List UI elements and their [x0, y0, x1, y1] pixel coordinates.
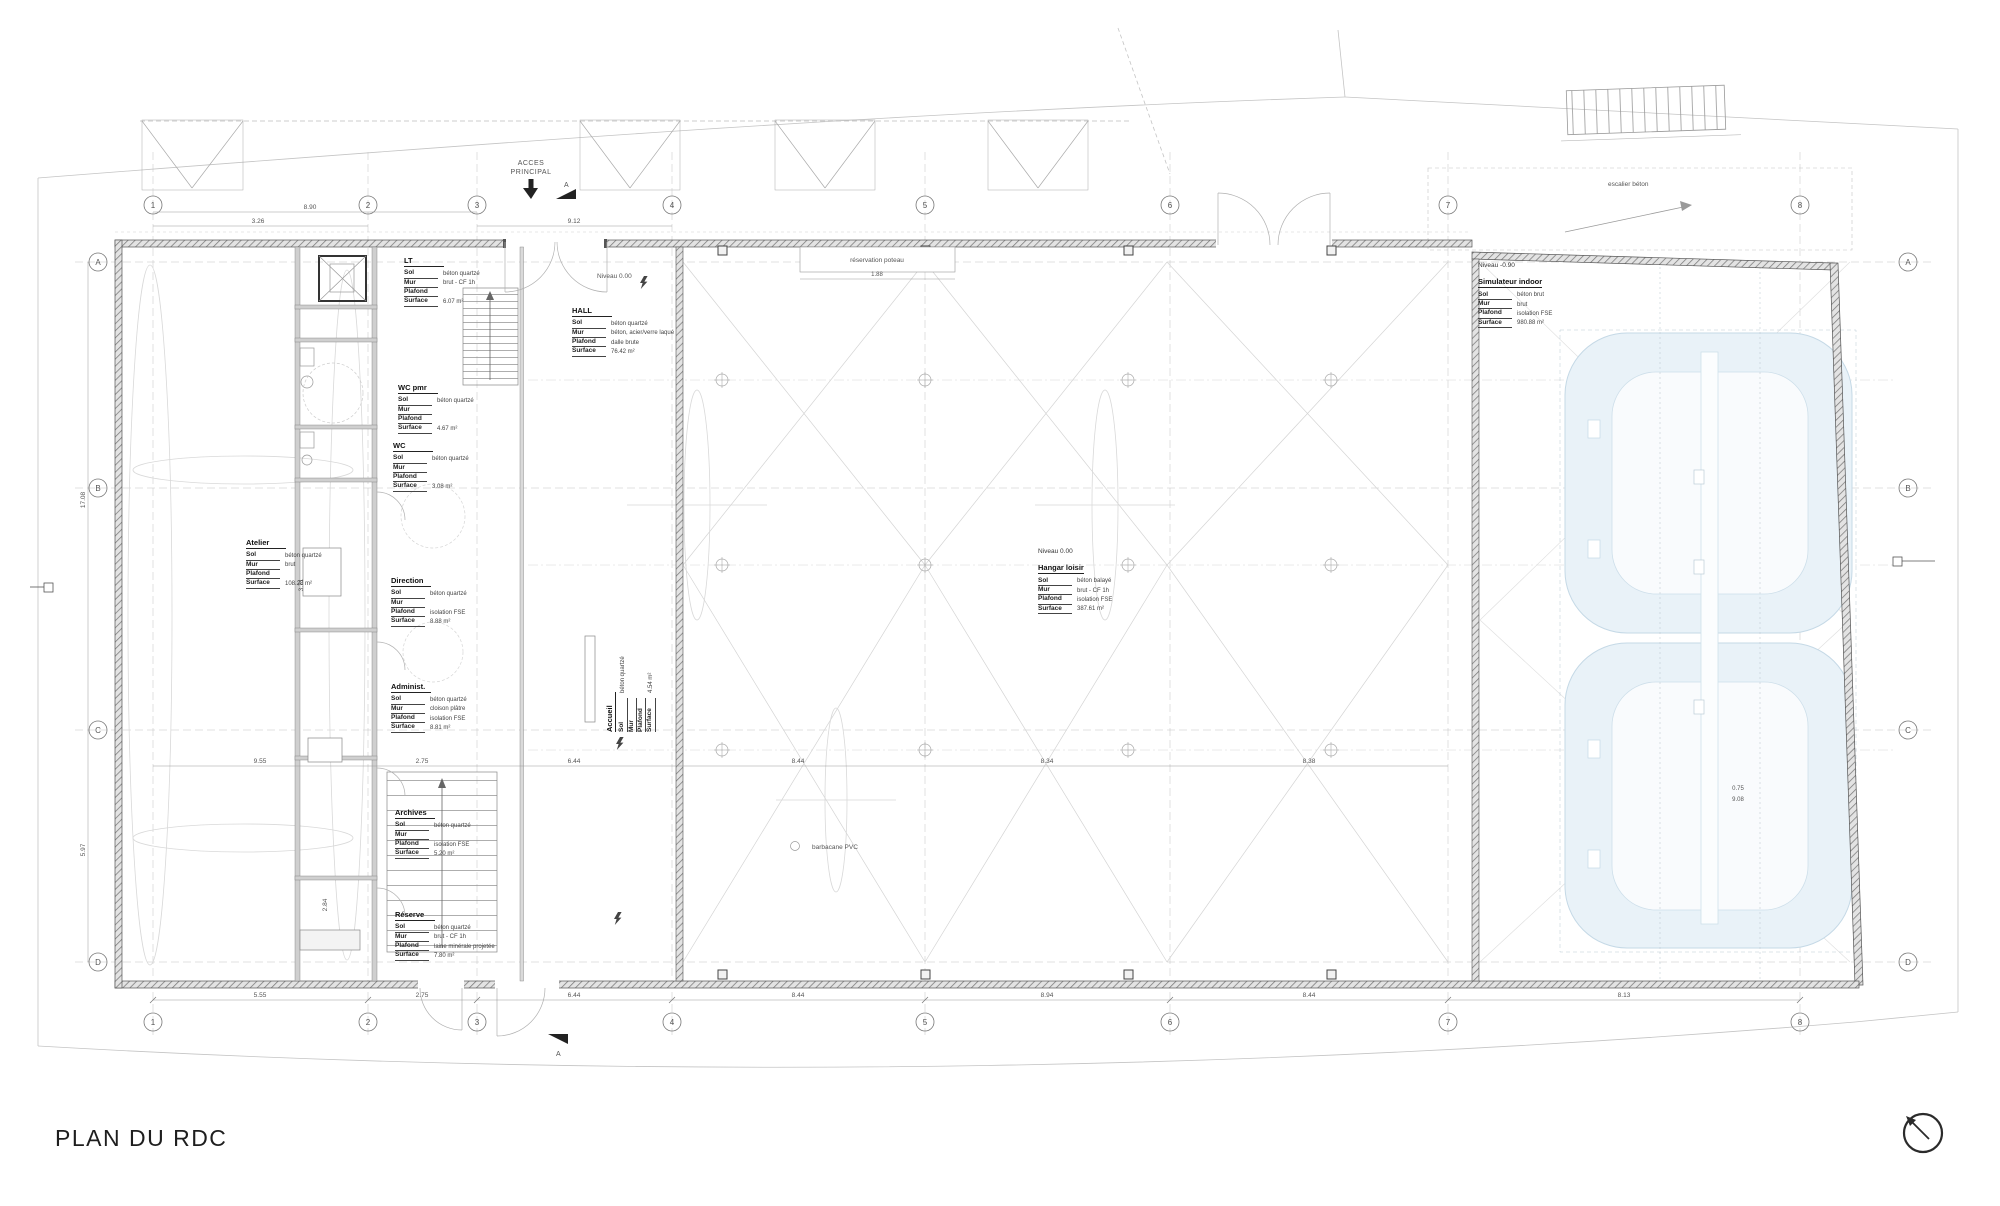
spec-value: brut - CF 1h [1072, 588, 1109, 596]
spec-value: 76.42 m² [606, 349, 635, 357]
lightning-icon [616, 737, 624, 750]
north-indicator [1904, 1114, 1942, 1152]
spec-label: Mur [391, 705, 425, 714]
spec-label: Plafond [391, 608, 425, 617]
svg-text:6.44: 6.44 [568, 758, 581, 765]
spec-value: isolation FSE [1512, 311, 1552, 319]
room-spec-wc: WC Solbéton quartzé Mur Plafond Surface3… [393, 434, 515, 492]
svg-text:0.75: 0.75 [1732, 786, 1744, 792]
canopy-trusses [115, 120, 1470, 232]
svg-text:8.38: 8.38 [1303, 758, 1316, 765]
spec-value: isolation FSE [425, 716, 465, 724]
spec-label: Sol [1478, 291, 1512, 300]
spec-label: Plafond [404, 288, 438, 297]
spec-value: 6.07 m² [438, 299, 463, 307]
spec-label: Mur [1478, 300, 1512, 309]
floor-plan-canvas: escalier béton [0, 0, 2000, 1206]
plan-drawing: escalier béton [0, 0, 2000, 1206]
spec-label: Sol [398, 396, 432, 405]
spec-label: Surface [404, 297, 438, 306]
svg-text:8.44: 8.44 [792, 992, 805, 999]
spec-label: Sol [391, 695, 425, 704]
svg-text:3.26: 3.26 [252, 218, 265, 225]
svg-text:7: 7 [1446, 1018, 1451, 1027]
svg-text:réservation poteau: réservation poteau [850, 257, 904, 264]
lightning-icon [614, 912, 622, 925]
room-spec-simulateur: Niveau -0.90 Simulateur indoor Solbéton … [1478, 262, 1600, 328]
spec-value: dalle brute [606, 340, 639, 348]
svg-text:C: C [1905, 726, 1911, 735]
svg-text:3: 3 [475, 201, 480, 210]
spec-label: Mur [1038, 586, 1072, 595]
svg-text:8: 8 [1798, 1018, 1803, 1027]
main-access-annotation: ACCES PRINCIPAL [511, 160, 552, 199]
svg-text:A: A [564, 182, 569, 189]
svg-text:9.08: 9.08 [1732, 797, 1744, 803]
room-name: Archives [395, 808, 435, 819]
spec-value: béton quartzé [280, 553, 322, 561]
svg-text:ACCES: ACCES [518, 160, 545, 167]
spec-value: béton quartzé [425, 591, 467, 599]
spec-label: Surface [391, 617, 425, 626]
section-marker-bottom: A [548, 1034, 568, 1058]
spec-label: Surface [1038, 605, 1072, 614]
spec-value: 3.08 m² [427, 484, 452, 492]
spec-value: béton quartzé [620, 656, 628, 698]
svg-text:1.88: 1.88 [871, 272, 883, 278]
svg-text:2: 2 [366, 201, 371, 210]
lightning-icon [640, 276, 648, 289]
section-marker-left [30, 583, 53, 592]
spec-label: Sol [395, 923, 429, 932]
drawing-title: PLAN DU RDC [55, 1125, 227, 1152]
svg-text:8.13: 8.13 [1618, 992, 1631, 999]
svg-text:D: D [95, 958, 101, 967]
spec-value: 4.67 m² [432, 426, 457, 434]
spec-value: isolation FSE [1072, 597, 1112, 605]
svg-text:6.44: 6.44 [568, 992, 581, 999]
simulator-pool [1560, 262, 1856, 980]
spec-value: 980.88 m² [1512, 320, 1544, 328]
room-name: Atelier [246, 538, 286, 549]
svg-text:8: 8 [1798, 201, 1803, 210]
room-spec-wc-pmr: WC pmr Solbéton quartzé Mur Plafond Surf… [398, 376, 520, 434]
svg-text:D: D [1905, 958, 1911, 967]
svg-text:3: 3 [475, 1018, 480, 1027]
room-spec-lt: LT Solbéton quartzé Murbrut - CF 1h Plaf… [404, 249, 526, 307]
spec-label: Sol [246, 551, 280, 560]
spec-value: béton quartzé [606, 321, 648, 329]
spec-value: béton quartzé [438, 271, 480, 279]
spec-label: Sol [395, 821, 429, 830]
svg-text:1: 1 [151, 201, 156, 210]
room-spec-administ: Administ. Solbéton quartzé Murcloison pl… [391, 675, 513, 733]
room-spec-hall: HALL Solbéton quartzé Murbéton, acier/ve… [572, 299, 694, 357]
svg-text:A: A [95, 258, 101, 267]
spec-value: isolation FSE [425, 610, 465, 618]
svg-text:9.55: 9.55 [254, 758, 267, 765]
svg-text:B: B [1905, 484, 1910, 493]
svg-text:6: 6 [1168, 1018, 1173, 1027]
room-name: Réserve [395, 910, 435, 921]
spec-value: 7.80 m² [429, 953, 454, 961]
spec-label: Plafond [1478, 309, 1512, 318]
spec-label: Surface [398, 424, 432, 433]
svg-text:barbacane PVC: barbacane PVC [812, 844, 858, 851]
exterior-stair-label: escalier béton [1608, 181, 1649, 188]
spec-value: béton quartzé [425, 697, 467, 705]
spec-label: Plafond [637, 698, 646, 732]
spec-label: Mur [246, 561, 280, 570]
spec-label: Sol [391, 589, 425, 598]
spec-label: Surface [572, 347, 606, 356]
room-spec-hangar: Niveau 0.00 Hangar loisir Solbéton balay… [1038, 548, 1160, 614]
room-spec-accueil: Accueil Solbéton quartzé Mur Plafond Sur… [598, 610, 656, 732]
svg-text:C: C [95, 726, 101, 735]
svg-text:4: 4 [670, 1018, 675, 1027]
level-note: Niveau 0.00 [1038, 548, 1160, 556]
svg-text:1: 1 [151, 1018, 156, 1027]
svg-text:B: B [95, 484, 100, 493]
spec-label: Mur [395, 831, 429, 840]
svg-text:6: 6 [1168, 201, 1173, 210]
down-arrow-icon [523, 179, 538, 199]
svg-text:8.44: 8.44 [1303, 992, 1316, 999]
svg-text:8.90: 8.90 [304, 204, 317, 211]
room-name: Administ. [391, 682, 431, 693]
room-name: Hangar loisir [1038, 563, 1084, 574]
room-name: WC pmr [398, 383, 438, 394]
elevator-shaft [319, 256, 366, 301]
svg-text:9.12: 9.12 [568, 218, 581, 225]
svg-text:5: 5 [923, 201, 928, 210]
spec-label: Sol [404, 269, 438, 278]
spec-label: Plafond [393, 473, 427, 482]
spec-label: Plafond [391, 714, 425, 723]
svg-text:7: 7 [1446, 201, 1451, 210]
spec-value: 8.81 m² [425, 725, 450, 733]
svg-text:8.94: 8.94 [1041, 992, 1054, 999]
room-name: LT [404, 256, 444, 267]
room-name: HALL [572, 306, 612, 317]
spec-value: béton brut [1512, 292, 1544, 300]
hall-level-note: Niveau 0.00 [597, 273, 632, 280]
spec-value: 4.54 m² [648, 673, 656, 698]
spec-value: béton quartzé [427, 456, 469, 464]
spec-label: Plafond [1038, 595, 1072, 604]
spec-label: Surface [246, 579, 280, 588]
barbacane-note: barbacane PVC [791, 842, 859, 852]
spec-label: Surface [395, 951, 429, 960]
level-note: Niveau -0.90 [1478, 262, 1600, 270]
spec-value: brut [280, 562, 295, 570]
spec-label: Mur [404, 279, 438, 288]
room-name: WC [393, 441, 433, 452]
spec-value: brut - CF 1h [429, 934, 466, 942]
spec-value: isolation FSE [429, 842, 469, 850]
svg-text:PRINCIPAL: PRINCIPAL [511, 169, 552, 176]
svg-text:5.97: 5.97 [80, 843, 87, 856]
spec-label: Plafond [395, 942, 429, 951]
svg-text:8.44: 8.44 [792, 758, 805, 765]
spec-label: Plafond [572, 338, 606, 347]
svg-text:17.08: 17.08 [80, 491, 87, 508]
svg-text:2.84: 2.84 [322, 898, 329, 911]
spec-value: béton quartzé [432, 398, 474, 406]
svg-text:5.55: 5.55 [254, 992, 267, 999]
room-spec-atelier: Atelier Solbéton quartzé Murbrut Plafond… [246, 531, 368, 589]
exterior-stair [1559, 85, 1741, 141]
spec-label: Mur [398, 406, 432, 415]
spec-label: Plafond [398, 415, 432, 424]
spec-value: béton, acier/verre laqué [606, 330, 674, 338]
spec-label: Surface [391, 723, 425, 732]
svg-text:2.75: 2.75 [416, 992, 429, 999]
spec-label: Surface [1478, 319, 1512, 328]
spec-value: 387.61 m² [1072, 606, 1104, 614]
spec-label: Sol [618, 698, 627, 732]
section-marker-top: A [556, 182, 576, 199]
spec-value: 8.88 m² [425, 619, 450, 627]
room-name: Simulateur indoor [1478, 277, 1542, 288]
svg-text:4: 4 [670, 201, 675, 210]
spec-label: Surface [395, 849, 429, 858]
svg-text:A: A [1905, 258, 1911, 267]
room-name: Accueil [605, 692, 616, 732]
room-name: Direction [391, 576, 431, 587]
reservation-note: réservation poteau 1.88 [800, 247, 955, 279]
spec-label: Mur [391, 599, 425, 608]
spec-label: Mur [628, 698, 637, 732]
svg-text:A: A [556, 1051, 561, 1058]
svg-text:2: 2 [366, 1018, 371, 1027]
spec-label: Mur [393, 464, 427, 473]
room-spec-archives: Archives Solbéton quartzé Mur Plafondiso… [395, 801, 517, 859]
spec-value: béton balayé [1072, 578, 1111, 586]
room-spec-reserve: Réserve Solbéton quartzé Murbrut - CF 1h… [395, 903, 517, 961]
spec-label: Sol [393, 454, 427, 463]
lightning-icons [614, 276, 648, 925]
spec-label: Sol [1038, 577, 1072, 586]
spec-value: béton quartzé [429, 925, 471, 933]
column-markers [714, 246, 1339, 979]
spec-value: cloison plâtre [425, 706, 465, 714]
spec-value: laine minérale projetée [429, 944, 495, 952]
spec-value: béton quartzé [429, 823, 471, 831]
svg-text:2.75: 2.75 [416, 758, 429, 765]
svg-text:8.34: 8.34 [1041, 758, 1054, 765]
spec-value: 5.20 m² [429, 851, 454, 859]
spec-label: Plafond [246, 570, 280, 579]
svg-text:5: 5 [923, 1018, 928, 1027]
spec-value: brut [1512, 302, 1527, 310]
spec-value: brut - CF 1h [438, 280, 475, 288]
spec-value: 108.28 m² [280, 581, 312, 589]
spec-label: Mur [572, 329, 606, 338]
spec-label: Surface [393, 482, 427, 491]
spec-label: Sol [572, 319, 606, 328]
spec-label: Plafond [395, 840, 429, 849]
section-marker-right [1893, 557, 1935, 566]
room-spec-direction: Direction Solbéton quartzé Mur Plafondis… [391, 569, 513, 627]
spec-label: Surface [646, 698, 655, 732]
spec-label: Mur [395, 933, 429, 942]
